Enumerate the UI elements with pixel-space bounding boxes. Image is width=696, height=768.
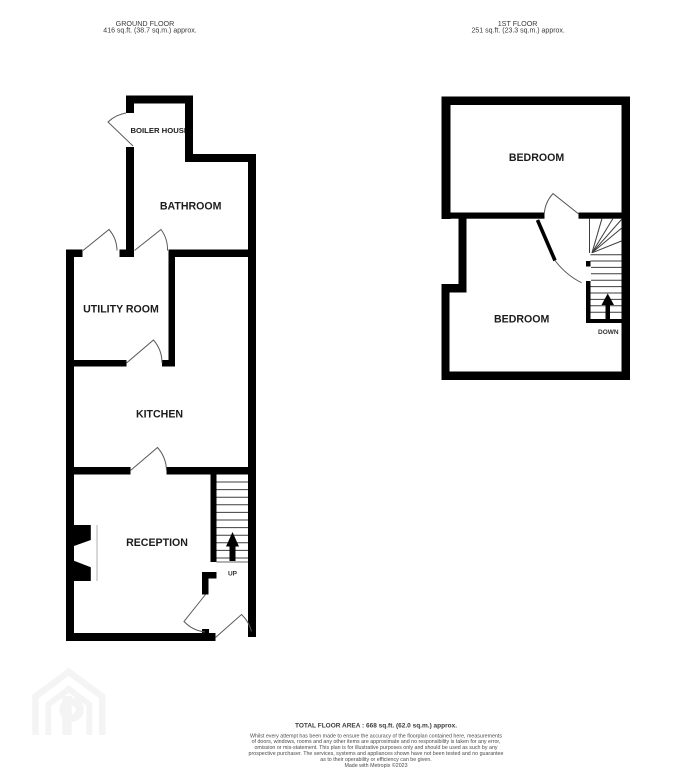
svg-text:BEDROOM: BEDROOM	[509, 152, 564, 164]
svg-text:BOILER HOUSE: BOILER HOUSE	[131, 126, 190, 135]
svg-text:BATHROOM: BATHROOM	[160, 201, 222, 213]
svg-text:Made with Metropix ©2023: Made with Metropix ©2023	[344, 762, 407, 768]
svg-text:251 sq.ft. (23.3 sq.m.) approx: 251 sq.ft. (23.3 sq.m.) approx.	[472, 28, 565, 35]
svg-text:RECEPTION: RECEPTION	[126, 537, 188, 549]
svg-text:UP: UP	[228, 571, 238, 578]
svg-text:KITCHEN: KITCHEN	[136, 409, 183, 421]
svg-text:UTILITY ROOM: UTILITY ROOM	[83, 304, 159, 316]
svg-text:1ST FLOOR: 1ST FLOOR	[498, 19, 538, 28]
svg-text:GROUND FLOOR: GROUND FLOOR	[116, 19, 175, 28]
svg-text:DOWN: DOWN	[598, 329, 619, 336]
svg-text:416 sq.ft. (38.7 sq.m.) approx: 416 sq.ft. (38.7 sq.m.) approx.	[103, 28, 196, 35]
svg-text:TOTAL FLOOR AREA : 668 sq.ft.: TOTAL FLOOR AREA : 668 sq.ft. (62.0 sq.m…	[295, 723, 457, 730]
svg-text:BEDROOM: BEDROOM	[494, 314, 549, 326]
